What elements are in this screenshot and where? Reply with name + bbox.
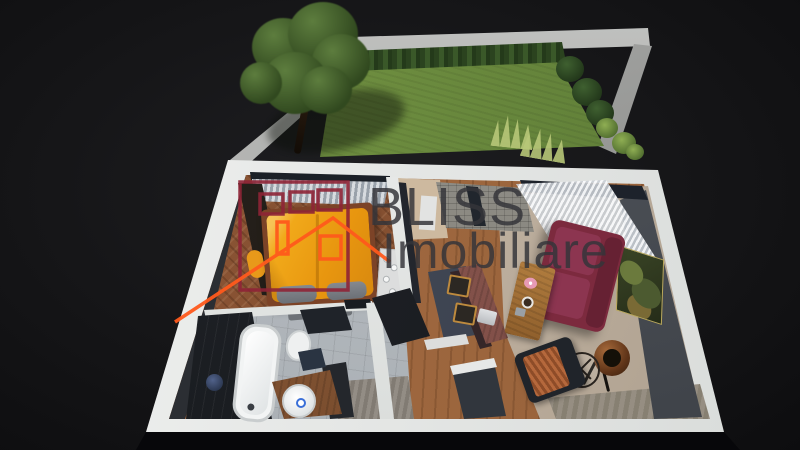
sink-drain	[296, 398, 306, 408]
vessel-sink	[282, 384, 316, 418]
roof-outline-with-chimney-and-window-icon	[175, 218, 390, 322]
tree-canopy	[240, 62, 282, 104]
watermark-brand-subtitle: Imobiliare	[382, 226, 609, 276]
table-tray	[514, 307, 526, 317]
garden-shrub	[556, 56, 584, 82]
tree-canopy	[300, 66, 352, 114]
lamp-shade-opening	[603, 349, 621, 367]
bathtub-basin	[239, 330, 276, 416]
terracotta-throw	[522, 345, 570, 397]
shower-head	[206, 374, 223, 391]
render-canvas: BLISS Imobiliare	[0, 0, 800, 450]
dining-chair	[452, 302, 477, 326]
garden-shrub	[626, 144, 644, 160]
